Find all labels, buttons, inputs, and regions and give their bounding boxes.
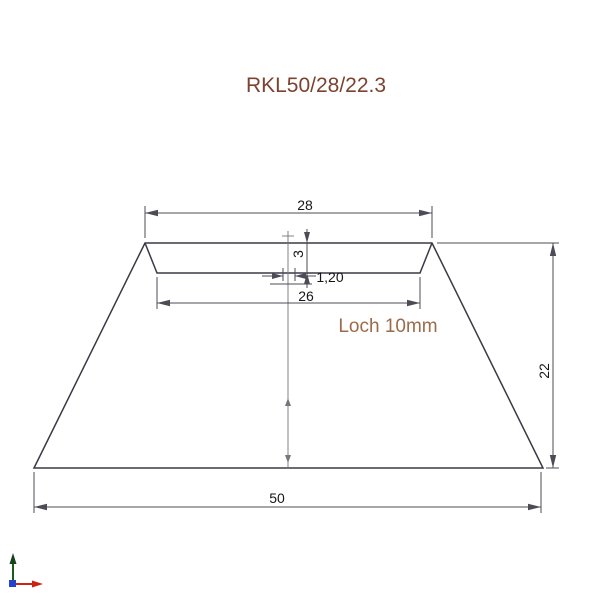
dim-label-recess-width: 26 xyxy=(298,289,314,303)
axis-origin-dot xyxy=(9,580,16,587)
center-line xyxy=(282,231,294,467)
dim-top-width xyxy=(145,206,432,238)
dim-label-recess-depth: 3 xyxy=(291,250,305,258)
dim-recess-width xyxy=(157,277,420,309)
recess-profile xyxy=(145,243,432,273)
part-outline xyxy=(34,243,543,468)
dim-base-width xyxy=(34,472,541,513)
dim-recess-depth xyxy=(304,229,310,288)
drawing-title: RKL50/28/22.3 xyxy=(246,74,386,98)
drawing-canvas: RKL50/28/22.3 28 3 1,20 26 Loch 10mm 22 … xyxy=(0,0,600,600)
dim-label-total-height: 22 xyxy=(537,363,551,379)
dim-label-edge-width: 1,20 xyxy=(316,270,343,284)
coordinate-axes-icon xyxy=(9,553,43,588)
dim-label-top-width: 28 xyxy=(297,198,313,212)
dim-label-base-width: 50 xyxy=(269,491,285,505)
outer-profile xyxy=(34,243,543,468)
dim-total-height xyxy=(437,243,559,468)
hole-note: Loch 10mm xyxy=(338,316,437,338)
